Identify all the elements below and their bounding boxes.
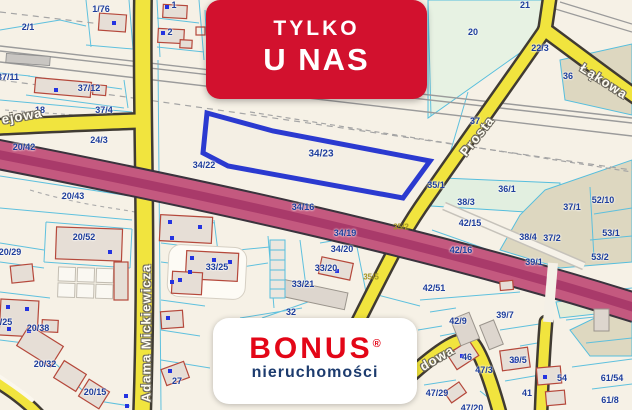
- badge-line1: TYLKO: [206, 17, 427, 41]
- garage-row: [270, 240, 285, 298]
- registered-mark: ®: [373, 338, 381, 350]
- exclusive-badge: TYLKO U NAS: [206, 0, 427, 99]
- agency-logo-card: BONUS® nieruchomości: [213, 318, 417, 404]
- agency-name: BONUS: [249, 332, 372, 365]
- agency-logo-brand: BONUS®: [213, 334, 417, 364]
- road-crossing-artery: [548, 263, 553, 322]
- agency-logo-subtitle: nieruchomości: [213, 365, 417, 381]
- listing-map-image: 2/11/761237/1137/1237/41824/320/4220/432…: [0, 0, 632, 410]
- badge-line2: U NAS: [206, 42, 427, 78]
